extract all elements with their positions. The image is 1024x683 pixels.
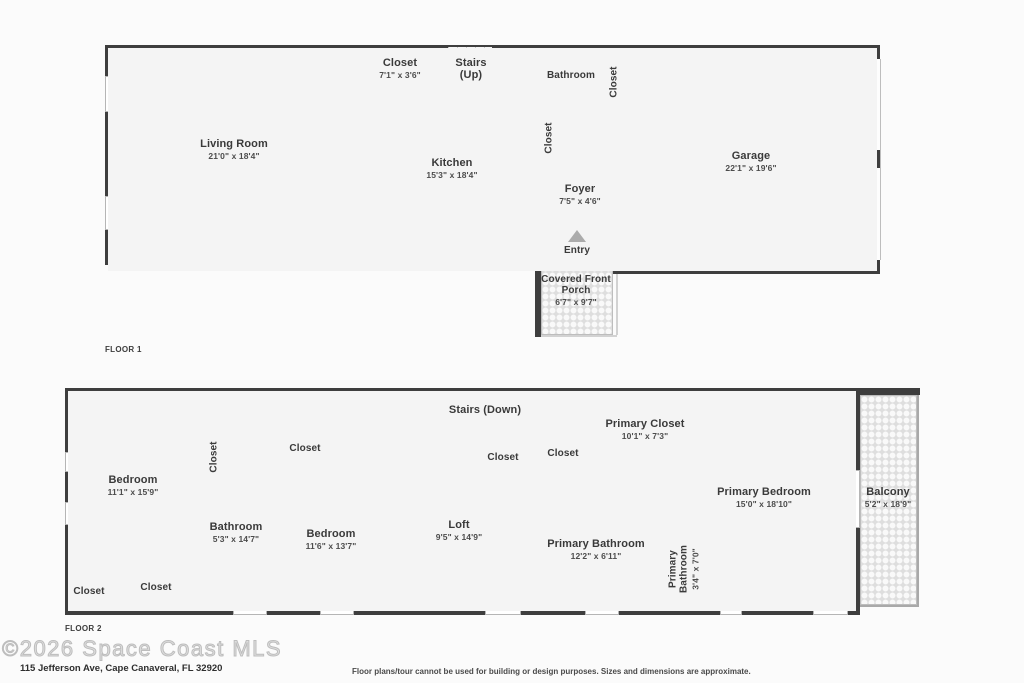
- room-dims: 11'1" x 15'9": [108, 487, 159, 497]
- room-label-closet-top: Closet 7'1" x 3'6": [379, 57, 421, 80]
- room-label-bathroom2: Bathroom 5'3" x 14'7": [210, 521, 263, 544]
- room-label-closet-bedroom2: Closet: [289, 443, 320, 454]
- room-dims: 10'1" x 7'3": [605, 431, 684, 441]
- room-dims: 21'0" x 18'4": [200, 151, 268, 161]
- room-name: Closet: [608, 66, 619, 97]
- balcony-edge: [858, 605, 919, 607]
- room-label-garage: Garage 22'1" x 19'6": [725, 150, 776, 173]
- room-name: Closet: [543, 122, 554, 153]
- room-name: Closet: [208, 441, 219, 472]
- room-name: Closet: [73, 586, 104, 597]
- room-name: Bathroom: [547, 70, 595, 81]
- room-dims: 5'2" x 18'9": [865, 499, 911, 509]
- room-label-entry: Entry: [564, 245, 590, 256]
- floor2-plan: Bedroom 11'1" x 15'9" Closet Bathroom 5'…: [65, 388, 920, 618]
- floor2-label: FLOOR 2: [65, 624, 102, 633]
- room-label-porch: Covered Front Porch 6'7" x 9'7": [534, 274, 618, 307]
- room-name: Loft: [436, 519, 482, 531]
- room-label-primary-closet: Primary Closet 10'1" x 7'3": [605, 418, 684, 441]
- balcony-edge: [917, 395, 919, 607]
- disclaimer-text: Floor plans/tour cannot be used for buil…: [352, 667, 751, 676]
- room-name: Primary Bathroom: [547, 538, 645, 550]
- room-label-balcony: Balcony 5'2" x 18'9": [865, 486, 911, 509]
- room-name: Foyer: [559, 183, 601, 195]
- room-name: Closet: [547, 448, 578, 459]
- room-name: Living Room: [200, 138, 268, 150]
- room-dims: 12'2" x 6'11": [547, 551, 645, 561]
- floor1-label: FLOOR 1: [105, 345, 142, 354]
- room-label-bedroom2: Bedroom 11'6" x 13'7": [306, 528, 357, 551]
- room-name: Closet: [487, 452, 518, 463]
- room-label-closet-left: Closet: [140, 582, 171, 593]
- room-label-closet-hall: Closet: [608, 66, 619, 97]
- room-label-living-room: Living Room 21'0" x 18'4": [200, 138, 268, 161]
- room-name: Bathroom: [210, 521, 263, 533]
- room-label-closet-hall-2: Closet: [547, 448, 578, 459]
- room-label-primary-bedroom: Primary Bedroom 15'0" x 18'10": [717, 486, 811, 509]
- room-label-stairs-down: Stairs (Down): [449, 404, 521, 416]
- room-name: Closet: [379, 57, 421, 69]
- room-name: Stairs (Up): [448, 57, 494, 82]
- room-dims: 11'6" x 13'7": [306, 541, 357, 551]
- room-label-closet-left-small: Closet: [73, 586, 104, 597]
- room-dims: 7'1" x 3'6": [379, 70, 421, 80]
- address-text: 115 Jefferson Ave, Cape Canaveral, FL 32…: [20, 663, 222, 674]
- room-dims: 7'5" x 4'6": [559, 196, 601, 206]
- room-label-closet-foyer: Closet: [543, 122, 554, 153]
- room-label-foyer: Foyer 7'5" x 4'6": [559, 183, 601, 206]
- room-label-bathroom: Bathroom: [547, 70, 595, 81]
- room-name: Garage: [725, 150, 776, 162]
- room-dims: 9'5" x 14'9": [436, 532, 482, 542]
- room-name: Bedroom: [306, 528, 357, 540]
- door-opening: [535, 335, 617, 337]
- room-label-stairs-up: Stairs (Up): [448, 57, 494, 82]
- room-name: Balcony: [865, 486, 911, 498]
- room-name: Bedroom: [108, 474, 159, 486]
- room-label-closet-hall-1: Closet: [487, 452, 518, 463]
- room-dims: 15'0" x 18'10": [717, 499, 811, 509]
- room-dims: 6'7" x 9'7": [534, 297, 618, 307]
- room-label-bedroom1: Bedroom 11'1" x 15'9": [108, 474, 159, 497]
- room-label-kitchen: Kitchen 15'3" x 18'4": [426, 157, 477, 180]
- floor-plan-page: { "meta": { "wall_color": "#3e3e3e", "ro…: [0, 0, 1024, 683]
- entry-arrow-icon: [568, 230, 586, 242]
- room-dims: 15'3" x 18'4": [426, 170, 477, 180]
- watermark: ©2026 Space Coast MLS: [2, 636, 282, 662]
- room-dims: 3'4" x 7'0": [691, 537, 701, 601]
- room-name: Stairs (Down): [449, 404, 521, 416]
- room-name: Closet: [289, 443, 320, 454]
- room-dims: 22'1" x 19'6": [725, 163, 776, 173]
- room-name: Covered Front Porch: [534, 274, 618, 296]
- room-label-closet-bedroom1: Closet: [208, 441, 219, 472]
- floor1-plan: Living Room 21'0" x 18'4" Closet 7'1" x …: [105, 45, 880, 337]
- room-name: Closet: [140, 582, 171, 593]
- room-name: Primary Bedroom: [717, 486, 811, 498]
- room-name: Kitchen: [426, 157, 477, 169]
- room-name: Primary Bathroom: [667, 537, 689, 601]
- room-name: Primary Closet: [605, 418, 684, 430]
- room-label-primary-bathroom: Primary Bathroom 12'2" x 6'11": [547, 538, 645, 561]
- room-label-loft: Loft 9'5" x 14'9": [436, 519, 482, 542]
- room-dims: 5'3" x 14'7": [210, 534, 263, 544]
- room-name: Entry: [564, 245, 590, 256]
- room-label-primary-bathroom-small: Primary Bathroom 3'4" x 7'0": [667, 537, 700, 601]
